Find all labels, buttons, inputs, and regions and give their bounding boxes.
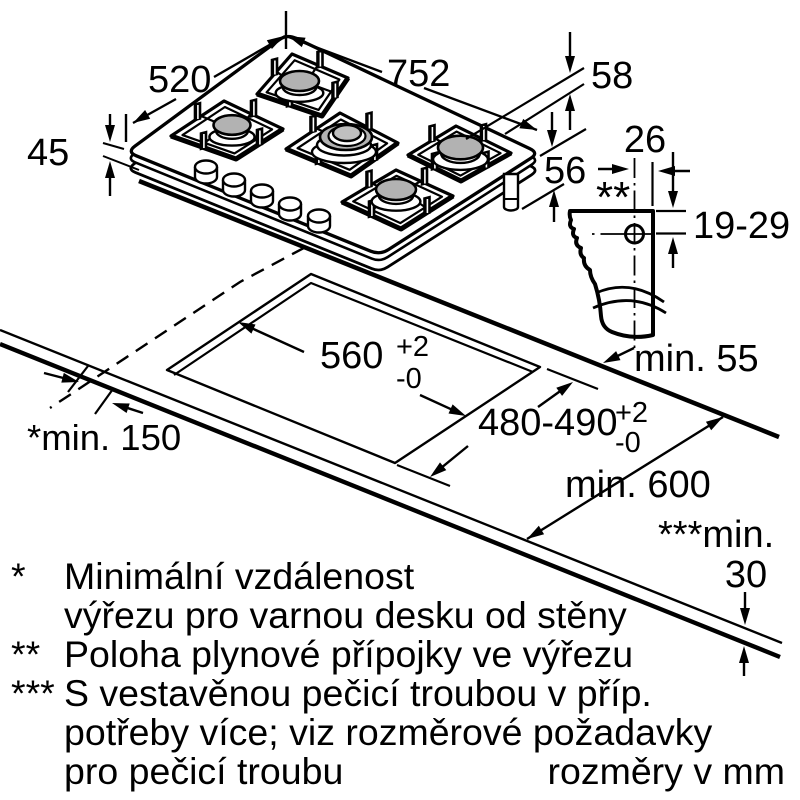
svg-text:**: ** [11,633,40,675]
svg-text:min. 600: min. 600 [565,464,711,506]
svg-text:480-490: 480-490 [478,402,617,444]
svg-text:-0: -0 [396,363,422,395]
svg-text:45: 45 [27,132,69,174]
svg-text:min. 55: min. 55 [634,338,759,380]
svg-text:560: 560 [320,335,383,377]
svg-text:potřeby více; viz rozměrové po: potřeby více; viz rozměrové požadavky [64,711,712,753]
svg-text:19-29: 19-29 [693,205,790,247]
svg-text:**: ** [596,173,630,222]
svg-text:752: 752 [387,53,450,95]
svg-text:*min. 150: *min. 150 [27,417,181,458]
svg-text:30: 30 [725,554,767,596]
svg-text:rozměry v mm: rozměry v mm [548,750,786,792]
svg-text:*: * [11,555,26,597]
svg-text:S vestavěnou pečicí troubou v: S vestavěnou pečicí troubou v příp. [64,672,652,714]
svg-text:Minimální vzdálenost: Minimální vzdálenost [64,555,415,597]
svg-text:výřezu pro varnou desku od stě: výřezu pro varnou desku od stěny [64,594,627,636]
svg-text:pro pečicí troubu: pro pečicí troubu [64,750,343,792]
svg-text:26: 26 [624,119,666,161]
svg-text:***: *** [11,672,55,714]
svg-text:56: 56 [544,150,586,192]
svg-text:58: 58 [591,55,633,97]
svg-text:+2: +2 [396,331,429,363]
svg-text:520: 520 [148,59,211,101]
svg-text:-0: -0 [615,427,641,459]
svg-text:***min.: ***min. [658,514,774,556]
svg-text:Poloha plynové přípojky ve výř: Poloha plynové přípojky ve výřezu [64,633,633,675]
svg-text:+2: +2 [615,397,648,429]
